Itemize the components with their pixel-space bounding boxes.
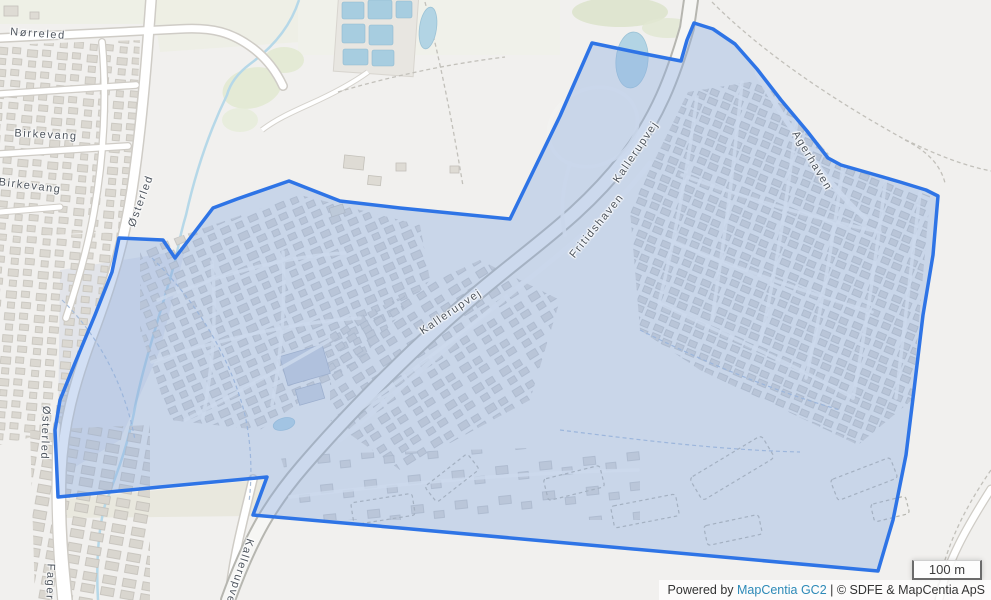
- scale-bar: 100 m: [912, 560, 982, 580]
- attribution-suffix: | © SDFE & MapCentia ApS: [827, 583, 985, 597]
- map-viewport[interactable]: NørreledBirkevangBirkevangØsterledØsterl…: [0, 0, 991, 600]
- attribution-prefix: Powered by: [668, 583, 737, 597]
- map-canvas[interactable]: [0, 0, 991, 600]
- mapcentia-gc2-link[interactable]: MapCentia GC2: [737, 583, 827, 597]
- attribution-bar: Powered by MapCentia GC2 | © SDFE & MapC…: [659, 580, 991, 600]
